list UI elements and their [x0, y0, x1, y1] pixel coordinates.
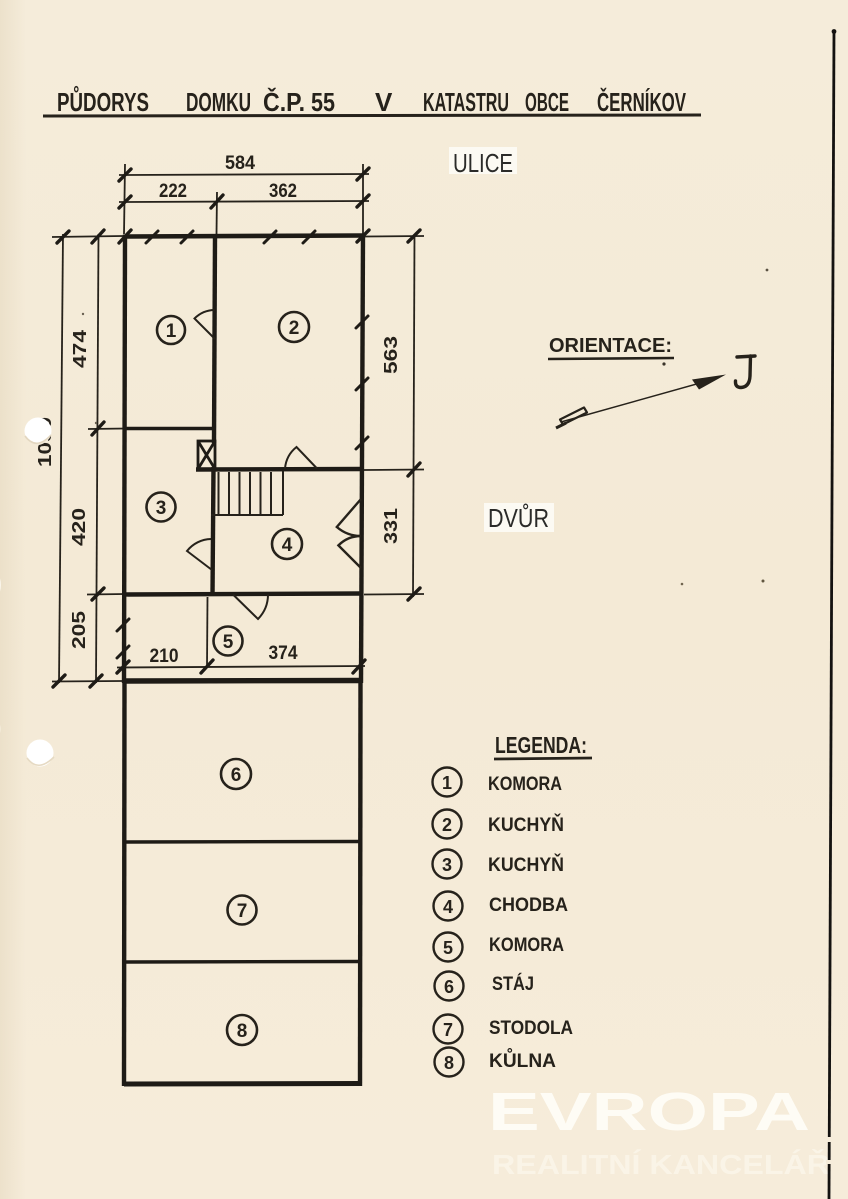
- svg-text:362: 362: [269, 181, 297, 202]
- svg-text:REALITNÍ KANCELÁŘ: REALITNÍ KANCELÁŘ: [492, 1149, 830, 1180]
- svg-text:DOMKU: DOMKU: [186, 87, 251, 117]
- svg-text:563: 563: [381, 336, 401, 374]
- svg-text:KŮLNA: KŮLNA: [489, 1049, 556, 1072]
- svg-text:7: 7: [443, 1020, 453, 1040]
- svg-text:205: 205: [69, 611, 89, 649]
- svg-text:KOMORA: KOMORA: [488, 774, 562, 795]
- svg-text:5: 5: [443, 938, 453, 958]
- svg-text:LEGENDA:: LEGENDA:: [495, 732, 587, 758]
- svg-text:PŮDORYS: PŮDORYS: [57, 85, 149, 117]
- svg-text:KATASTRU: KATASTRU: [423, 87, 509, 117]
- svg-text:STÁJ: STÁJ: [492, 973, 534, 995]
- svg-text:CHODBA: CHODBA: [489, 895, 568, 916]
- svg-text:DVŮR: DVŮR: [488, 502, 549, 533]
- svg-text:584: 584: [225, 153, 255, 174]
- svg-text:KOMORA: KOMORA: [489, 935, 564, 956]
- svg-text:4: 4: [443, 897, 453, 917]
- svg-text:EVROPA: EVROPA: [488, 1082, 810, 1142]
- svg-text:STODOLA: STODOLA: [489, 1018, 573, 1039]
- svg-text:2: 2: [289, 318, 300, 339]
- svg-text:420: 420: [69, 508, 89, 546]
- svg-text:OBCE: OBCE: [525, 87, 569, 117]
- svg-text:1: 1: [166, 321, 177, 342]
- svg-text:5: 5: [223, 632, 234, 653]
- svg-text:222: 222: [159, 181, 187, 202]
- svg-text:1: 1: [442, 773, 452, 793]
- svg-text:4: 4: [282, 535, 293, 556]
- svg-text:7: 7: [237, 901, 248, 922]
- svg-text:8: 8: [444, 1053, 454, 1073]
- svg-text:2: 2: [442, 815, 452, 835]
- svg-text:210: 210: [150, 646, 179, 667]
- svg-text:ORIENTACE:: ORIENTACE:: [549, 335, 672, 357]
- svg-text:Č.P.: Č.P.: [263, 87, 305, 117]
- svg-text:6: 6: [231, 765, 242, 786]
- svg-text:55: 55: [311, 87, 335, 117]
- svg-text:V: V: [375, 87, 393, 117]
- svg-text:3: 3: [442, 855, 452, 875]
- svg-text:8: 8: [237, 1021, 248, 1042]
- svg-text:KUCHYŇ: KUCHYŇ: [488, 814, 564, 836]
- svg-text:6: 6: [444, 977, 454, 997]
- svg-text:474: 474: [70, 330, 90, 368]
- svg-text:3: 3: [156, 498, 167, 519]
- svg-text:ČERNÍKOV: ČERNÍKOV: [597, 87, 686, 117]
- svg-text:KUCHYŇ: KUCHYŇ: [488, 854, 564, 876]
- svg-text:ULICE: ULICE: [453, 148, 513, 178]
- svg-text:331: 331: [381, 508, 401, 544]
- svg-text:374: 374: [269, 643, 298, 664]
